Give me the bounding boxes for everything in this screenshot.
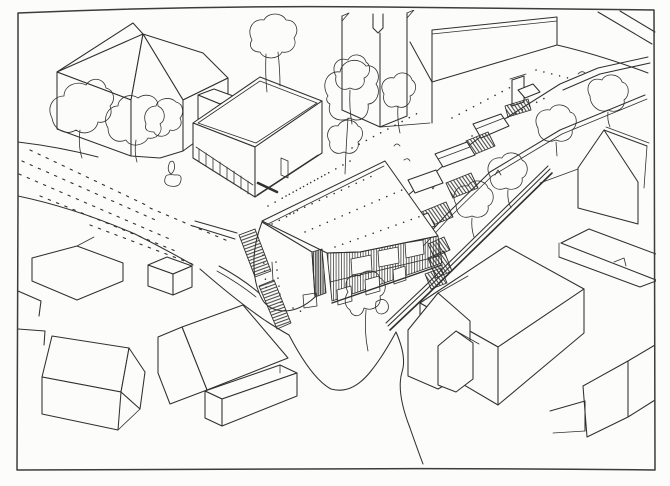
window: [351, 255, 372, 275]
site-sketch-svg: Hand-drawn black ink architectural site …: [0, 0, 670, 486]
sketch-page: Hand-drawn black ink architectural site …: [0, 0, 670, 486]
window: [378, 247, 399, 267]
